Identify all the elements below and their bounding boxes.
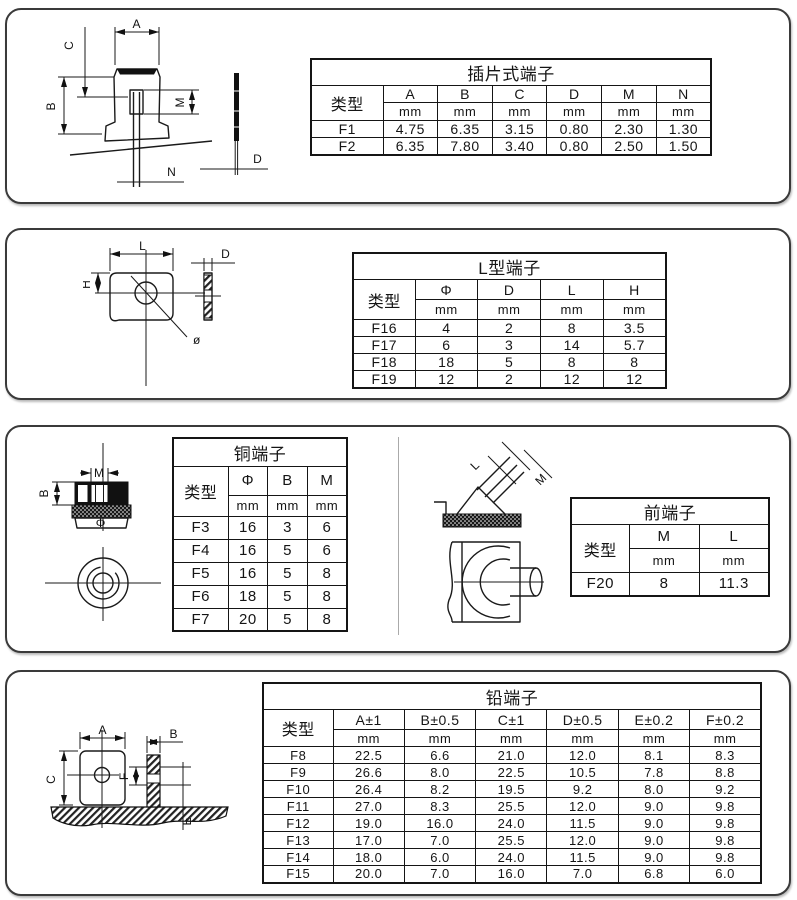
value-cell: 6 xyxy=(307,516,347,539)
dim-label-b: B xyxy=(169,727,178,741)
dim-label-phi: Φ xyxy=(96,516,107,530)
top-view xyxy=(45,547,161,621)
value-cell: 25.5 xyxy=(476,832,547,849)
table-row: F51658 xyxy=(173,562,347,585)
front-view xyxy=(448,542,544,622)
dim-label-l: L xyxy=(139,239,147,253)
diameter-label: ø xyxy=(193,333,201,347)
value-cell: 12.0 xyxy=(547,832,618,849)
copper-terminal-table: 铜端子类型ΦBMmmmmmmF31636F41656F51658F61858F7… xyxy=(172,437,348,632)
column-header: D xyxy=(547,86,602,103)
panel-copper-front-terminal: Φ M B 铜端子类型ΦBMmmmmmmF31636F41656F51658F6… xyxy=(5,425,791,653)
value-cell: 3.5 xyxy=(603,320,666,337)
value-cell: 9.8 xyxy=(690,832,761,849)
lead-terminal-table: 铅端子类型A±1B±0.5C±1D±0.5E±0.2F±0.2mmmmmmmmm… xyxy=(262,682,762,884)
column-header: L xyxy=(541,280,604,300)
type-header: 类型 xyxy=(353,280,415,320)
value-cell: 5 xyxy=(268,562,308,585)
unit-cell: mm xyxy=(478,300,541,320)
unit-cell: mm xyxy=(629,549,699,573)
row-type: F7 xyxy=(173,608,228,631)
table-row: F31636 xyxy=(173,516,347,539)
row-type: F11 xyxy=(263,798,333,815)
unit-cell: mm xyxy=(547,103,602,121)
unit-cell: mm xyxy=(541,300,604,320)
table-row: F822.56.621.012.08.18.3 xyxy=(263,747,761,764)
value-cell: 16 xyxy=(228,539,268,562)
table-row: F1763145.7 xyxy=(353,337,666,354)
value-cell: 11.5 xyxy=(547,815,618,832)
unit-cell: mm xyxy=(415,300,478,320)
value-cell: 9.2 xyxy=(690,781,761,798)
column-header: C xyxy=(492,86,547,103)
panel-l-type-terminal: ø L H D L型端子类型ΦDLHmmmmmmmmF164283.5F1763… xyxy=(5,228,791,400)
value-cell: 22.5 xyxy=(476,764,547,781)
value-cell: 2.50 xyxy=(602,138,657,156)
row-type: F9 xyxy=(263,764,333,781)
value-cell: 5 xyxy=(268,539,308,562)
value-cell: 17.0 xyxy=(333,832,404,849)
unit-cell: mm xyxy=(307,495,347,516)
value-cell: 2 xyxy=(478,371,541,389)
table-row: F164283.5 xyxy=(353,320,666,337)
unit-cell: mm xyxy=(492,103,547,121)
value-cell: 16 xyxy=(228,516,268,539)
column-header: B xyxy=(268,466,308,495)
unit-cell: mm xyxy=(618,730,689,747)
dim-label-a: A xyxy=(98,723,107,737)
value-cell: 11.3 xyxy=(699,573,769,596)
value-cell: 12 xyxy=(603,371,666,389)
value-cell: 8.8 xyxy=(690,764,761,781)
unit-cell: mm xyxy=(228,495,268,516)
value-cell: 8 xyxy=(307,608,347,631)
dim-label-f: F xyxy=(117,772,131,780)
unit-cell: mm xyxy=(603,300,666,320)
copper-terminal-drawing: Φ M B xyxy=(30,435,180,635)
value-cell: 8 xyxy=(541,320,604,337)
value-cell: 8 xyxy=(307,585,347,608)
unit-cell: mm xyxy=(333,730,404,747)
value-cell: 5 xyxy=(268,585,308,608)
row-type: F16 xyxy=(353,320,415,337)
table-title: 前端子 xyxy=(571,498,769,525)
dim-label-c: C xyxy=(44,774,58,784)
unit-cell: mm xyxy=(602,103,657,121)
value-cell: 5.7 xyxy=(603,337,666,354)
column-header: Φ xyxy=(228,466,268,495)
value-cell: 3.15 xyxy=(492,121,547,138)
value-cell: 10.5 xyxy=(547,764,618,781)
dim-label-c: C xyxy=(62,40,76,50)
value-cell: 1.30 xyxy=(656,121,711,138)
table-row: F1317.07.025.512.09.09.8 xyxy=(263,832,761,849)
front-terminal-drawing: L M xyxy=(420,440,565,635)
value-cell: 7.8 xyxy=(618,764,689,781)
value-cell: 9.0 xyxy=(618,832,689,849)
panel-lead-terminal: A C B F E 铅端子类型A±1B±0.5C±1D±0.5E±0.2F±0.… xyxy=(5,670,791,896)
value-cell: 19.5 xyxy=(476,781,547,798)
value-cell: 16 xyxy=(228,562,268,585)
type-header: 类型 xyxy=(173,466,228,516)
column-header: B xyxy=(438,86,493,103)
value-cell: 3.40 xyxy=(492,138,547,156)
dim-label-d: D xyxy=(221,247,231,261)
value-cell: 0.80 xyxy=(547,138,602,156)
row-type: F4 xyxy=(173,539,228,562)
unit-cell: mm xyxy=(547,730,618,747)
value-cell: 20 xyxy=(228,608,268,631)
l-type-terminal-table: L型端子类型ΦDLHmmmmmmmmF164283.5F1763145.7F18… xyxy=(352,252,667,389)
unit-cell: mm xyxy=(404,730,475,747)
value-cell: 8.0 xyxy=(404,764,475,781)
value-cell: 8.0 xyxy=(618,781,689,798)
value-cell: 2 xyxy=(478,320,541,337)
value-cell: 26.6 xyxy=(333,764,404,781)
table-row: 铅端子 xyxy=(263,683,761,710)
value-cell: 7.0 xyxy=(404,832,475,849)
value-cell: 3 xyxy=(478,337,541,354)
l-type-terminal-drawing: ø L H D xyxy=(83,238,253,394)
row-type: F8 xyxy=(263,747,333,764)
value-cell: 18 xyxy=(415,354,478,371)
table-row: F61858 xyxy=(173,585,347,608)
row-type: F13 xyxy=(263,832,333,849)
value-cell: 8.3 xyxy=(690,747,761,764)
table-title: 插片式端子 xyxy=(311,59,711,86)
column-header: M xyxy=(602,86,657,103)
value-cell: 21.0 xyxy=(476,747,547,764)
column-header: A±1 xyxy=(333,710,404,730)
table-row: F926.68.022.510.57.88.8 xyxy=(263,764,761,781)
value-cell: 18 xyxy=(228,585,268,608)
dimensions: L H xyxy=(83,239,173,293)
unit-cell: mm xyxy=(268,495,308,516)
column-header: C±1 xyxy=(476,710,547,730)
row-type: F18 xyxy=(353,354,415,371)
row-type: F3 xyxy=(173,516,228,539)
table-row: F191221212 xyxy=(353,371,666,389)
row-type: F10 xyxy=(263,781,333,798)
lead-terminal-drawing: A C B F E xyxy=(43,722,238,842)
row-type: F15 xyxy=(263,866,333,883)
row-type: F17 xyxy=(353,337,415,354)
value-cell: 9.8 xyxy=(690,849,761,866)
side-view: D xyxy=(200,73,268,175)
table-row: 类型ΦDLH xyxy=(353,280,666,300)
unit-cell: mm xyxy=(438,103,493,121)
dimensions: A C B M N xyxy=(44,17,199,182)
column-header: D±0.5 xyxy=(547,710,618,730)
unit-cell: mm xyxy=(690,730,761,747)
value-cell: 9.0 xyxy=(618,849,689,866)
table-row: F14.756.353.150.802.301.30 xyxy=(311,121,711,138)
column-header: D xyxy=(478,280,541,300)
value-cell: 16.0 xyxy=(476,866,547,883)
value-cell: 7.0 xyxy=(547,866,618,883)
dim-label-d: D xyxy=(253,152,263,166)
table-row: F1026.48.219.59.28.09.2 xyxy=(263,781,761,798)
value-cell: 24.0 xyxy=(476,849,547,866)
type-header: 类型 xyxy=(571,525,629,573)
type-header: 类型 xyxy=(263,710,333,747)
dim-label-n: N xyxy=(167,165,177,179)
ground xyxy=(51,807,228,826)
value-cell: 12.0 xyxy=(547,798,618,815)
table-row: 类型ΦBM xyxy=(173,466,347,495)
value-cell: 12 xyxy=(415,371,478,389)
value-cell: 27.0 xyxy=(333,798,404,815)
value-cell: 16.0 xyxy=(404,815,475,832)
value-cell: 6.6 xyxy=(404,747,475,764)
dim-label-a: A xyxy=(132,17,141,31)
front-view xyxy=(70,69,212,187)
value-cell: 9.8 xyxy=(690,798,761,815)
blade-terminal-table: 插片式端子类型ABCDMNmmmmmmmmmmmmF14.756.353.150… xyxy=(310,58,712,156)
column-header: A xyxy=(383,86,438,103)
column-header: E±0.2 xyxy=(618,710,689,730)
unit-cell: mm xyxy=(656,103,711,121)
dim-label-m: M xyxy=(94,466,105,480)
table-row: 铜端子 xyxy=(173,438,347,466)
value-cell: 6 xyxy=(415,337,478,354)
front-view: ø xyxy=(95,250,205,386)
table-row: mmmmmmmmmmmm xyxy=(263,730,761,747)
table-row: 插片式端子 xyxy=(311,59,711,86)
value-cell: 22.5 xyxy=(333,747,404,764)
table-row: F20811.3 xyxy=(571,573,769,596)
column-header: Φ xyxy=(415,280,478,300)
value-cell: 11.5 xyxy=(547,849,618,866)
dim-label-h: H xyxy=(83,279,93,289)
row-type: F14 xyxy=(263,849,333,866)
dim-label-m: M xyxy=(173,97,187,108)
value-cell: 8 xyxy=(629,573,699,596)
column-header: M xyxy=(629,525,699,549)
column-header: N xyxy=(656,86,711,103)
section-view: Φ M B xyxy=(37,443,131,531)
table-row: F72058 xyxy=(173,608,347,631)
dim-label-l: L xyxy=(468,458,483,473)
value-cell: 12 xyxy=(541,371,604,389)
table-title: 铜端子 xyxy=(173,438,347,466)
value-cell: 6.8 xyxy=(618,866,689,883)
value-cell: 1.50 xyxy=(656,138,711,156)
type-header: 类型 xyxy=(311,86,383,121)
table-row: 类型ABCDMN xyxy=(311,86,711,103)
column-header: F±0.2 xyxy=(690,710,761,730)
value-cell: 6.0 xyxy=(404,849,475,866)
value-cell: 8 xyxy=(541,354,604,371)
row-type: F2 xyxy=(311,138,383,156)
table-row: F26.357.803.400.802.501.50 xyxy=(311,138,711,156)
panel-blade-terminal: A C B M N D 插片式端子类型ABCDMNmmmmmmmmmmmmF xyxy=(5,8,791,204)
value-cell: 6 xyxy=(307,539,347,562)
value-cell: 6.0 xyxy=(690,866,761,883)
table-row: L型端子 xyxy=(353,253,666,280)
value-cell: 9.0 xyxy=(618,815,689,832)
value-cell: 3 xyxy=(268,516,308,539)
table-row: F41656 xyxy=(173,539,347,562)
value-cell: 14 xyxy=(541,337,604,354)
row-type: F6 xyxy=(173,585,228,608)
value-cell: 8 xyxy=(307,562,347,585)
value-cell: 6.35 xyxy=(438,121,493,138)
value-cell: 18.0 xyxy=(333,849,404,866)
value-cell: 0.80 xyxy=(547,121,602,138)
table-title: L型端子 xyxy=(353,253,666,280)
blade-terminal-drawing: A C B M N D xyxy=(22,15,297,195)
value-cell: 8.3 xyxy=(404,798,475,815)
value-cell: 25.5 xyxy=(476,798,547,815)
value-cell: 5 xyxy=(268,608,308,631)
value-cell: 9.2 xyxy=(547,781,618,798)
column-header: B±0.5 xyxy=(404,710,475,730)
value-cell: 7.0 xyxy=(404,866,475,883)
value-cell: 2.30 xyxy=(602,121,657,138)
value-cell: 6.35 xyxy=(383,138,438,156)
table-row: F1127.08.325.512.09.09.8 xyxy=(263,798,761,815)
table-row: F1520.07.016.07.06.86.0 xyxy=(263,866,761,883)
section-divider xyxy=(398,437,399,635)
side-view: D xyxy=(191,247,235,320)
row-type: F20 xyxy=(571,573,629,596)
unit-cell: mm xyxy=(476,730,547,747)
front-terminal-table: 前端子类型MLmmmmF20811.3 xyxy=(570,497,770,597)
table-title: 铅端子 xyxy=(263,683,761,710)
table-row: 前端子 xyxy=(571,498,769,525)
value-cell: 8 xyxy=(603,354,666,371)
value-cell: 12.0 xyxy=(547,747,618,764)
value-cell: 4.75 xyxy=(383,121,438,138)
value-cell: 5 xyxy=(478,354,541,371)
value-cell: 4 xyxy=(415,320,478,337)
value-cell: 8.1 xyxy=(618,747,689,764)
value-cell: 7.80 xyxy=(438,138,493,156)
column-header: L xyxy=(699,525,769,549)
column-header: H xyxy=(603,280,666,300)
row-type: F12 xyxy=(263,815,333,832)
dim-label-b: B xyxy=(44,101,58,110)
row-type: F19 xyxy=(353,371,415,389)
value-cell: 20.0 xyxy=(333,866,404,883)
table-row: F1219.016.024.011.59.09.8 xyxy=(263,815,761,832)
value-cell: 9.8 xyxy=(690,815,761,832)
row-type: F5 xyxy=(173,562,228,585)
dim-label-b: B xyxy=(37,488,51,497)
column-header: M xyxy=(307,466,347,495)
angled-view: L M xyxy=(434,442,552,527)
value-cell: 9.0 xyxy=(618,798,689,815)
value-cell: 26.4 xyxy=(333,781,404,798)
page: { "page": { "background": "#ffffff", "pa… xyxy=(0,0,797,900)
unit-cell: mm xyxy=(699,549,769,573)
table-row: 类型ML xyxy=(571,525,769,549)
value-cell: 8.2 xyxy=(404,781,475,798)
table-row: 类型A±1B±0.5C±1D±0.5E±0.2F±0.2 xyxy=(263,710,761,730)
table-row: F1418.06.024.011.59.09.8 xyxy=(263,849,761,866)
unit-cell: mm xyxy=(383,103,438,121)
dim-label-e: E xyxy=(180,816,194,825)
value-cell: 19.0 xyxy=(333,815,404,832)
value-cell: 24.0 xyxy=(476,815,547,832)
row-type: F1 xyxy=(311,121,383,138)
table-row: F1818588 xyxy=(353,354,666,371)
